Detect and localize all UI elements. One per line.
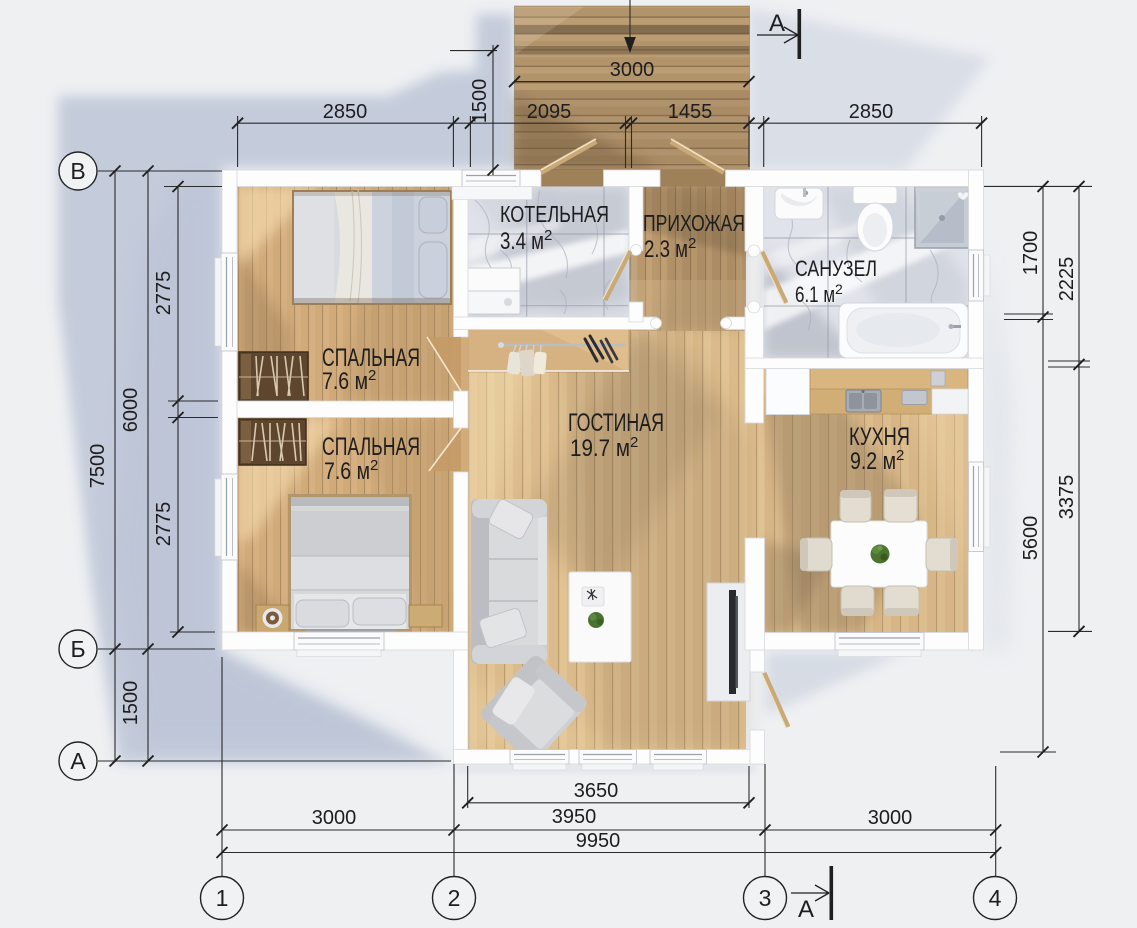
- svg-text:1500: 1500: [120, 681, 142, 726]
- svg-text:1: 1: [216, 885, 229, 911]
- svg-text:3000: 3000: [312, 807, 357, 829]
- svg-text:3650: 3650: [574, 780, 619, 802]
- svg-text:3950: 3950: [552, 806, 597, 828]
- svg-text:2850: 2850: [323, 101, 368, 123]
- svg-text:3000: 3000: [610, 59, 655, 81]
- svg-text:А: А: [798, 896, 814, 923]
- svg-text:3000: 3000: [868, 807, 913, 829]
- svg-text:ПРИХОЖАЯ: ПРИХОЖАЯ: [643, 210, 745, 236]
- svg-text:7500: 7500: [87, 444, 109, 489]
- svg-text:6000: 6000: [120, 388, 142, 433]
- svg-text:ГОСТИНАЯ: ГОСТИНАЯ: [568, 409, 664, 437]
- svg-text:3: 3: [759, 885, 772, 911]
- svg-text:2225: 2225: [1056, 257, 1078, 302]
- svg-text:2850: 2850: [849, 101, 894, 123]
- svg-text:9950: 9950: [576, 830, 621, 852]
- svg-text:1700: 1700: [1020, 231, 1042, 276]
- svg-text:САНУЗЕЛ: САНУЗЕЛ: [795, 256, 877, 281]
- svg-text:А: А: [70, 748, 86, 774]
- svg-text:КОТЕЛЬНАЯ: КОТЕЛЬНАЯ: [500, 201, 609, 227]
- svg-text:2: 2: [448, 885, 461, 911]
- svg-text:5600: 5600: [1020, 516, 1042, 561]
- svg-text:А: А: [769, 10, 785, 37]
- svg-text:Б: Б: [70, 636, 85, 662]
- svg-text:19.7 м2: 19.7 м2: [570, 434, 638, 462]
- svg-text:1455: 1455: [668, 101, 713, 123]
- svg-text:2095: 2095: [527, 101, 572, 123]
- svg-text:1500: 1500: [469, 79, 491, 124]
- svg-text:3375: 3375: [1056, 475, 1078, 520]
- svg-text:4: 4: [989, 885, 1002, 911]
- svg-text:В: В: [70, 158, 85, 184]
- svg-text:2775: 2775: [153, 502, 175, 547]
- svg-text:2775: 2775: [153, 271, 175, 316]
